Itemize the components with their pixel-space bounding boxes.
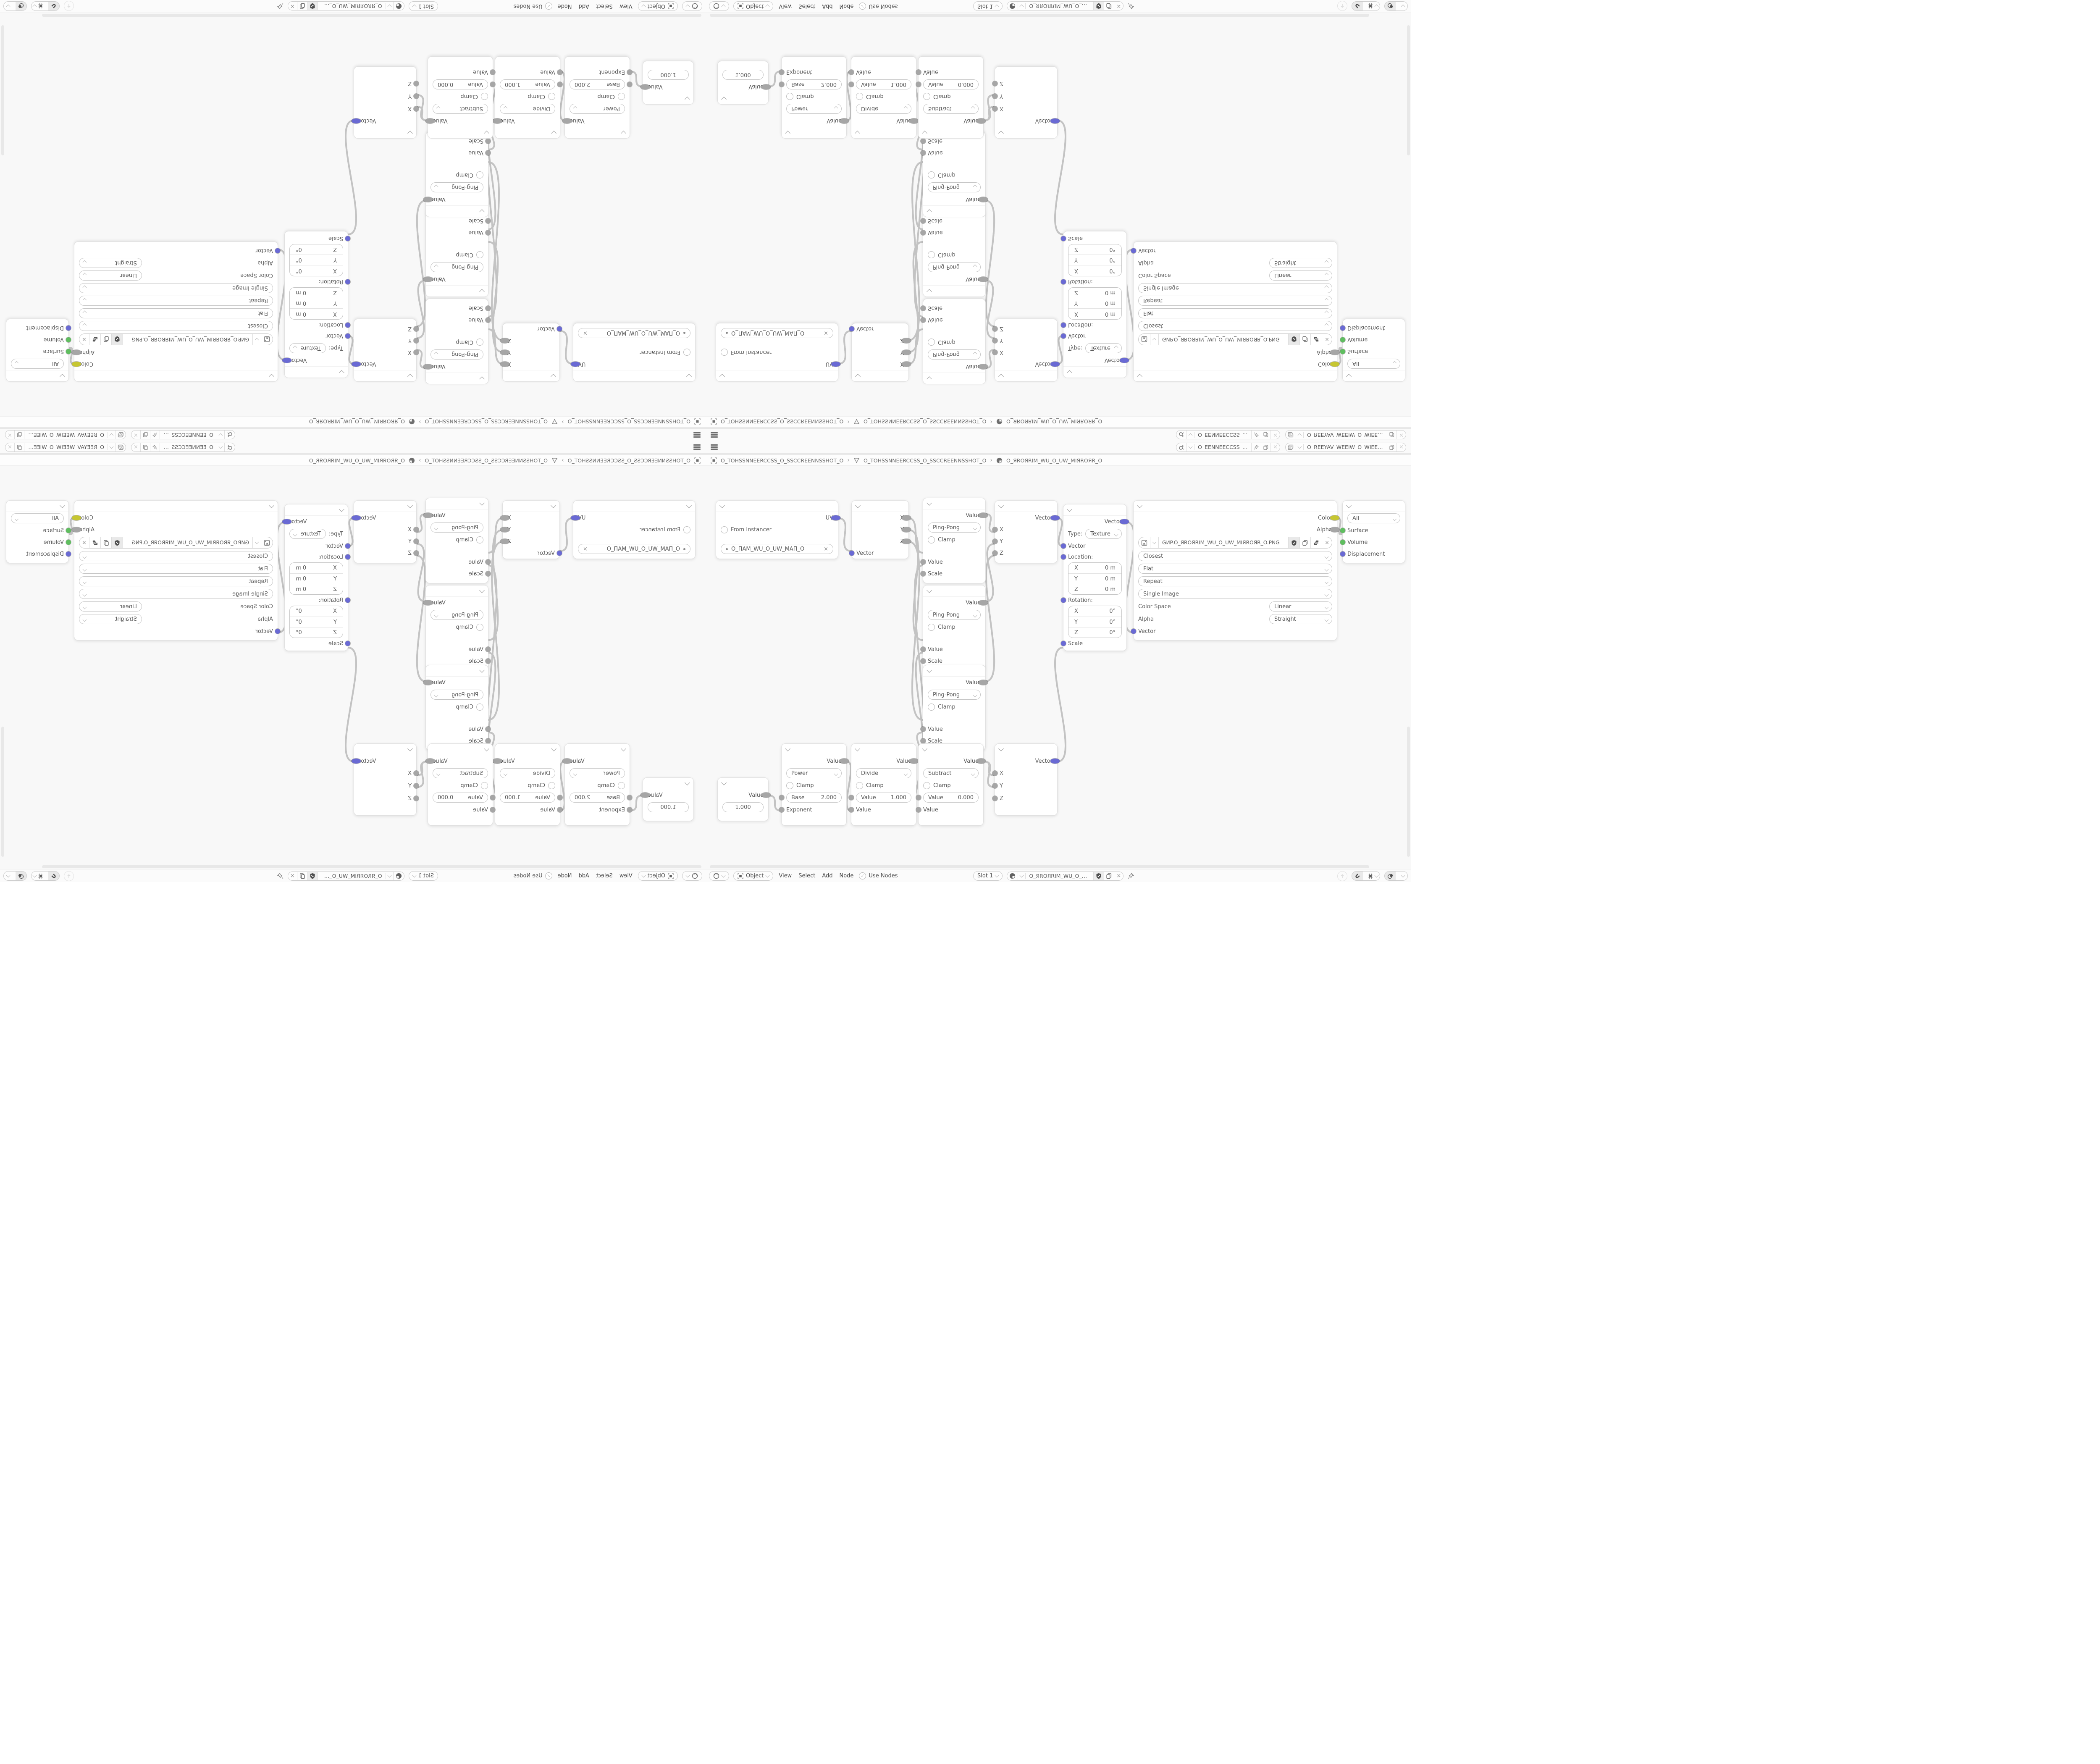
node-collapse-header[interactable] [919,744,983,755]
interpolation-select[interactable]: Closest [79,321,273,331]
node-math-ping-pong[interactable]: Value Ping-Pong Clamp Value Scale [923,665,986,751]
x-input-socket[interactable] [992,527,997,532]
editor-type-button[interactable] [709,1,729,11]
color-output-socket[interactable] [72,515,81,520]
shield-icon[interactable] [1093,2,1104,10]
operation-select[interactable]: Ping-Pong [430,690,483,700]
exponent-input-socket[interactable] [627,70,632,75]
horizontal-scrollbar[interactable] [710,14,1369,17]
operation-select[interactable]: Ping-Pong [430,262,483,272]
copy-icon[interactable] [297,872,307,880]
breadcrumb-object[interactable]: O_TOHSSNNEERCCSS_O_SSCCREENNSSHOT_O [568,457,690,464]
node-collapse-header[interactable] [995,744,1057,755]
location-input-socket[interactable] [1061,554,1066,559]
base-input-socket[interactable] [627,795,632,800]
vector-input-socket[interactable] [1061,333,1066,339]
copy-icon[interactable] [1299,334,1310,345]
value-input-socket[interactable] [916,807,921,812]
overlap-control[interactable] [1384,1,1408,11]
editor-type-button[interactable] [682,871,702,881]
value-output-socket[interactable] [979,513,988,518]
z-output-socket[interactable] [902,338,911,343]
value-input-socket[interactable] [921,559,926,564]
scale-input-socket[interactable] [486,218,491,223]
color-output-socket[interactable] [72,362,81,367]
node-collapse-header[interactable] [426,665,488,677]
value-input-socket[interactable] [921,150,926,155]
location-vector-field[interactable]: X0 m Y0 m Z0 m [289,287,343,320]
node-collapse-header[interactable] [285,504,348,516]
node-collapse-header[interactable] [503,501,559,512]
z-input-socket[interactable] [992,81,997,86]
value-output-socket[interactable] [979,364,988,369]
value-input-socket[interactable] [486,318,491,323]
value-output-socket[interactable] [423,277,433,282]
value-field[interactable]: Value0.000 [433,79,488,89]
scale-input-socket[interactable] [921,738,926,743]
z-input-socket[interactable] [414,551,419,556]
scene-selector[interactable]: O_EENNEECCSS_O_SSCCEEN… × [1176,430,1280,440]
y-input-socket[interactable] [414,94,419,99]
stack-icon[interactable] [89,334,101,345]
mapping-type-select[interactable]: Texture [289,529,326,539]
snap-target-icon[interactable] [1365,3,1380,9]
target-select[interactable]: All [1347,513,1400,523]
extension-select[interactable]: Repeat [79,296,273,306]
z-output-socket[interactable] [500,539,509,544]
menu-node[interactable]: Node [556,873,573,879]
y-output-socket[interactable] [500,527,509,532]
x-input-socket[interactable] [992,350,997,355]
node-separate-xyz[interactable]: X Y Z Vector [851,500,909,559]
overlap-circles-icon[interactable] [16,2,26,10]
menu-node[interactable]: Node [838,3,855,9]
node-math-divide[interactable]: Value Divide Clamp Value1.000 Value [495,743,560,826]
node-material-output[interactable]: All Surface Volume Displacement [1342,500,1405,563]
view-layer-selector[interactable]: O_REEYAV_WEEIW_O_WIEEW_VAYEER_O × [1285,430,1406,440]
close-icon[interactable]: × [1322,334,1332,345]
location-vector-field[interactable]: X0 m Y0 m Z0 m [289,562,343,595]
value-input-socket[interactable] [921,318,926,323]
scale-input-socket[interactable] [921,659,926,664]
clamp-checkbox[interactable] [928,172,935,179]
z-input-socket[interactable] [414,81,419,86]
vector-input-socket[interactable] [345,333,350,339]
node-collapse-header[interactable] [1134,501,1337,512]
vector-input-socket[interactable] [1131,629,1136,634]
value-input-socket[interactable] [921,230,926,235]
value-output-socket[interactable] [979,277,988,282]
operation-select[interactable]: Subtract [923,104,979,114]
node-collapse-header[interactable] [565,744,630,755]
node-combine-xyz[interactable]: Vector X Y Z [354,500,417,563]
value-output-socket[interactable] [640,793,650,798]
node-combine-xyz[interactable]: Vector X Y Z [995,500,1058,563]
interpolation-select[interactable]: Closest [1138,321,1332,331]
operation-select[interactable]: Subtract [923,768,979,778]
value-output-socket[interactable] [423,513,433,518]
value-output-socket[interactable] [425,759,435,764]
node-math-ping-pong[interactable]: Value Ping-Pong Clamp Value Scale [923,585,986,671]
shield-icon[interactable] [1093,872,1104,880]
value-field[interactable]: 1.000 [648,70,689,80]
value-input-socket[interactable] [486,230,491,235]
color-space-select[interactable]: Linear [1269,270,1332,281]
node-value[interactable]: Value 1.000 [717,777,769,821]
scale-input-socket[interactable] [345,236,350,241]
color-space-select[interactable]: Linear [1269,601,1332,612]
pin-icon[interactable] [1251,443,1261,451]
hamburger-menu-icon[interactable] [711,444,718,450]
value-field[interactable]: Value1.000 [856,793,911,803]
clamp-checkbox[interactable] [928,624,935,631]
clamp-checkbox[interactable] [476,624,483,631]
extension-select[interactable]: Repeat [79,576,273,586]
breadcrumb-object[interactable]: O_TOHSSNNEERCCSS_O_SSCCREENNSSHOT_O [568,419,690,425]
rotation-input-socket[interactable] [345,598,350,603]
value-output-socket[interactable] [761,84,771,89]
node-collapse-header[interactable] [573,501,695,512]
operation-select[interactable]: Ping-Pong [928,349,981,360]
operation-select[interactable]: Ping-Pong [430,610,483,620]
breadcrumb-mesh[interactable]: O_TOHSSNNEERCCSS_O_SSCCREENNSSHOT_O [864,457,986,464]
node-separate-xyz[interactable]: X Y Z Vector [502,323,560,382]
x-input-socket[interactable] [414,106,419,111]
x-input-socket[interactable] [414,527,419,532]
snapping-control[interactable] [1352,871,1380,881]
alpha-select[interactable]: Straight [79,258,142,268]
clamp-checkbox[interactable] [476,339,483,346]
value-output-socket[interactable] [840,118,849,123]
rotation-input-socket[interactable] [345,279,350,284]
value-output-socket[interactable] [493,759,502,764]
node-collapse-header[interactable] [426,373,488,384]
value-input-socket[interactable] [490,807,495,812]
node-mapping[interactable]: Vector Type:Texture Vector Location: X0 … [1063,504,1127,651]
node-image-texture[interactable]: Color Alpha GИP.O_ЯROЯRIM_WU_O_UW_MIЯROЯ… [74,500,278,640]
x-output-socket[interactable] [500,515,509,520]
z-input-socket[interactable] [414,326,419,331]
x-input-socket[interactable] [992,106,997,111]
image-filename[interactable]: GИP.O_ЯROЯRIM_WU_O_UW_MIЯROЯR_O.PNG [123,334,253,345]
from-instancer-checkbox[interactable] [721,349,728,356]
node-math-subtract[interactable]: Value Subtract Clamp Value0.000 Value [428,743,493,826]
value-output-socket[interactable] [423,364,433,369]
vector-output-socket[interactable] [282,358,291,363]
value-output-socket[interactable] [976,759,986,764]
shield-icon[interactable] [307,2,318,10]
image-file-field[interactable]: GИP.O_ЯROЯRIM_WU_O_UW_MIЯROЯR_O.PNG × [79,537,273,549]
node-mapping[interactable]: Vector Type:Texture Vector Location: X0 … [1063,231,1127,378]
color-space-select[interactable]: Linear [79,601,142,612]
scale-input-socket[interactable] [1061,236,1066,241]
operation-select[interactable]: Ping-Pong [928,182,981,192]
value-output-socket[interactable] [761,793,771,798]
mode-dropdown[interactable]: Object [638,1,678,11]
node-collapse-header[interactable] [852,501,908,512]
node-image-texture[interactable]: Color Alpha GИP.O_ЯROЯRIM_WU_O_UW_MIЯROЯ… [74,241,278,382]
copy-icon[interactable] [101,537,112,548]
close-icon[interactable]: × [824,546,828,552]
menu-select[interactable]: Select [797,3,816,9]
slot-dropdown[interactable]: Slot 1 [973,1,1003,11]
copy-icon[interactable] [15,431,24,439]
image-file-field[interactable]: GИP.O_ЯROЯRIM_WU_O_UW_MIЯROЯR_O.PNG × [1138,537,1332,549]
overlap-circles-icon[interactable] [1385,871,1396,880]
node-math-ping-pong[interactable]: Value Ping-Pong Clamp Value Scale [425,585,488,671]
overlap-circles-icon[interactable] [16,871,26,880]
view-layer-name[interactable]: O_REEYAV_WEEIW_O_WIEEW_VAYEER_O [24,444,108,450]
clamp-checkbox[interactable] [923,782,930,789]
extension-select[interactable]: Repeat [1138,576,1332,586]
value-input-socket[interactable] [490,82,495,87]
rotation-vector-field[interactable]: X0° Y0° Z0° [1068,244,1122,276]
vector-output-socket[interactable] [352,362,361,367]
vector-input-socket[interactable] [1061,543,1066,549]
clamp-checkbox[interactable] [476,172,483,179]
magnet-icon[interactable] [48,2,59,10]
node-math-ping-pong[interactable]: Value Ping-Pong Clamp Value Scale [923,131,986,217]
copy-icon[interactable] [141,443,150,451]
value-input-socket[interactable] [916,795,921,800]
breadcrumb-mesh[interactable]: O_TOHSSNNEERCCSS_O_SSCCREENNSSHOT_O [425,457,548,464]
scale-input-socket[interactable] [921,571,926,576]
clamp-checkbox[interactable] [548,93,555,100]
alpha-output-socket[interactable] [1330,527,1339,532]
node-collapse-header[interactable] [426,205,488,217]
scene-name[interactable]: O_EENNEECCSS_O_SSCCEEN… [160,432,217,438]
value-output-socket[interactable] [493,118,502,123]
node-math-ping-pong[interactable]: Value Ping-Pong Clamp Value Scale [425,211,488,297]
node-collapse-header[interactable] [643,778,693,789]
node-collapse-header[interactable] [1343,370,1405,381]
up-arrow-button[interactable] [1337,871,1347,881]
uv-output-socket[interactable] [831,515,840,520]
exponent-input-socket[interactable] [779,807,784,812]
value-field[interactable]: Value0.000 [923,793,979,803]
clamp-checkbox[interactable] [786,782,793,789]
vector-output-socket[interactable] [352,118,361,123]
image-file-field[interactable]: GИP.O_ЯROЯRIM_WU_O_UW_MIЯROЯR_O.PNG × [79,333,273,345]
node-separate-xyz[interactable]: X Y Z Vector [502,500,560,559]
close-icon[interactable]: × [1114,2,1123,10]
location-input-socket[interactable] [345,554,350,559]
node-collapse-header[interactable] [495,744,560,755]
node-collapse-header[interactable] [354,127,416,138]
value-field[interactable]: Value0.000 [433,793,488,803]
breadcrumb-object[interactable]: O_TOHSSNNEERCCSS_O_SSCCREENNSSHOT_O [721,457,843,464]
value-input-socket[interactable] [486,647,491,652]
image-file-field[interactable]: GИP.O_ЯROЯRIM_WU_O_UW_MIЯROЯR_O.PNG × [1138,333,1332,345]
close-icon[interactable]: × [5,443,15,451]
view-layer-selector[interactable]: O_REEYAV_WEEIW_O_WIEEW_VAYEER_O × [5,430,126,440]
vector-output-socket[interactable] [1050,118,1060,123]
y-input-socket[interactable] [414,783,419,788]
magnet-icon[interactable] [48,871,59,880]
z-output-socket[interactable] [500,338,509,343]
breadcrumb-material[interactable]: O_ЯROЯRIM_WU_O_UW_MIЯROЯR_O [1006,419,1102,425]
mode-dropdown[interactable]: Object [638,871,678,881]
pin-icon[interactable] [1128,873,1134,879]
value-input-socket[interactable] [849,70,854,75]
value-field[interactable]: 1.000 [648,802,689,812]
value-field[interactable]: Value1.000 [500,793,555,803]
shield-icon[interactable] [1288,334,1299,345]
snapping-control[interactable] [31,871,60,881]
view-layer-name[interactable]: O_REEYAV_WEEIW_O_WIEEW_VAYEER_O [1303,432,1387,438]
use-nodes-checkbox[interactable]: ✓ [859,872,866,879]
surface-input-socket[interactable] [66,349,71,354]
menu-add[interactable]: Add [577,3,591,9]
color-space-select[interactable]: Linear [79,270,142,281]
scene-selector[interactable]: O_EENNEECCSS_O_SSCCEEN… × [1176,443,1280,452]
operation-select[interactable]: Ping-Pong [928,610,981,620]
node-collapse-header[interactable] [716,501,838,512]
menu-add[interactable]: Add [821,3,834,9]
up-arrow-button[interactable] [64,871,74,881]
value-output-socket[interactable] [979,197,988,202]
node-math-power[interactable]: Value Power Clamp Base2.000 Exponent [781,56,847,139]
value-output-socket[interactable] [423,197,433,202]
operation-select[interactable]: Ping-Pong [430,349,483,360]
displacement-input-socket[interactable] [1340,325,1345,331]
clamp-checkbox[interactable] [476,703,483,711]
snap-target-icon[interactable] [31,3,46,9]
rotation-input-socket[interactable] [1061,279,1066,284]
mapping-type-select[interactable]: Texture [289,343,326,353]
vector-input-socket[interactable] [275,248,280,253]
editor-type-button[interactable] [682,1,702,11]
stack-icon[interactable] [1310,537,1322,548]
value-input-socket[interactable] [921,727,926,732]
scale-input-socket[interactable] [486,571,491,576]
node-collapse-header[interactable] [782,127,846,138]
node-material-output[interactable]: All Surface Volume Displacement [6,500,69,563]
vector-output-socket[interactable] [1050,759,1060,764]
volume-input-socket[interactable] [66,540,71,545]
copy-icon[interactable] [1261,431,1270,439]
z-input-socket[interactable] [992,796,997,801]
base-field[interactable]: Base2.000 [570,793,625,803]
clamp-checkbox[interactable] [923,93,930,100]
menu-node[interactable]: Node [838,873,855,879]
copy-icon[interactable] [1261,443,1270,451]
node-combine-xyz[interactable]: Vector X Y Z [995,743,1058,816]
vertical-scrollbar[interactable] [1,727,4,857]
vertical-scrollbar[interactable] [1,25,4,155]
vector-output-socket[interactable] [282,519,291,524]
node-uv-map[interactable]: UV From Instancer O_ПAM_WU_O_UW_MAП_O× [573,323,696,382]
close-icon[interactable]: × [5,431,15,439]
surface-input-socket[interactable] [1340,528,1345,533]
scene-selector[interactable]: O_EENNEECCSS_O_SSCCEEN… × [131,443,235,452]
magnet-icon[interactable] [1352,2,1363,10]
view-layer-selector[interactable]: O_REEYAV_WEEIW_O_WIEEW_VAYEER_O × [1285,443,1406,452]
alpha-output-socket[interactable] [1330,350,1339,355]
menu-view[interactable]: View [777,873,793,879]
z-input-socket[interactable] [992,551,997,556]
shield-icon[interactable] [307,872,318,880]
source-select[interactable]: Single Image [1138,283,1332,293]
mapping-type-select[interactable]: Texture [1085,343,1122,353]
scale-input-socket[interactable] [1061,641,1066,646]
menu-view[interactable]: View [777,3,793,9]
uv-output-socket[interactable] [571,362,580,367]
value-output-socket[interactable] [425,118,435,123]
node-combine-xyz[interactable]: Vector X Y Z [354,743,417,816]
node-collapse-header[interactable] [1063,504,1126,516]
breadcrumb-material[interactable]: O_ЯROЯRIM_WU_O_UW_MIЯROЯR_O [1006,457,1102,464]
scale-input-socket[interactable] [486,738,491,743]
node-collapse-header[interactable] [6,370,68,381]
base-input-socket[interactable] [779,795,784,800]
clamp-checkbox[interactable] [928,252,935,259]
clamp-checkbox[interactable] [928,536,935,543]
target-select[interactable]: All [1347,359,1400,369]
z-output-socket[interactable] [902,539,911,544]
node-collapse-header[interactable] [851,127,916,138]
x-output-socket[interactable] [902,515,911,520]
y-output-socket[interactable] [902,350,911,355]
close-icon[interactable]: × [79,334,89,345]
stack-icon[interactable] [1310,334,1322,345]
node-collapse-header[interactable] [718,778,768,789]
pin-icon[interactable] [277,3,283,9]
shield-icon[interactable] [112,334,123,345]
value-output-socket[interactable] [562,118,572,123]
value-input-socket[interactable] [916,70,921,75]
horizontal-scrollbar[interactable] [42,14,701,17]
node-uv-map[interactable]: UV From Instancer O_ПAM_WU_O_UW_MAП_O× [716,500,838,559]
alpha-select[interactable]: Straight [1269,258,1332,268]
node-collapse-header[interactable] [995,370,1057,381]
projection-select[interactable]: Flat [1138,308,1332,318]
node-uv-map[interactable]: UV From Instancer O_ПAM_WU_O_UW_MAП_O× [716,323,838,382]
value-input-socket[interactable] [486,727,491,732]
mode-dropdown[interactable]: Object [733,1,773,11]
location-vector-field[interactable]: X0 m Y0 m Z0 m [1068,287,1122,320]
copy-icon[interactable] [1387,443,1396,451]
value-input-socket[interactable] [916,82,921,87]
scene-name[interactable]: O_EENNEECCSS_O_SSCCEEN… [1194,432,1251,438]
value-input-socket[interactable] [486,559,491,564]
close-icon[interactable]: × [1322,537,1332,548]
slot-dropdown[interactable]: Slot 1 [973,871,1003,881]
node-collapse-header[interactable] [852,370,908,381]
value-input-socket[interactable] [557,795,562,800]
node-image-texture[interactable]: Color Alpha GИP.O_ЯROЯRIM_WU_O_UW_MIЯROЯ… [1133,500,1337,640]
node-collapse-header[interactable] [1343,501,1405,512]
vertical-scrollbar[interactable] [1407,25,1410,155]
pin-icon[interactable] [150,443,160,451]
close-icon[interactable]: × [1114,872,1123,880]
y-input-socket[interactable] [414,338,419,343]
vector-output-socket[interactable] [1050,362,1060,367]
close-icon[interactable]: × [1270,443,1280,451]
node-combine-xyz[interactable]: Vector X Y Z [995,319,1058,382]
stack-icon[interactable] [89,537,101,548]
snap-target-icon[interactable] [1365,873,1380,879]
location-input-socket[interactable] [345,323,350,328]
x-input-socket[interactable] [414,350,419,355]
vector-output-socket[interactable] [1120,358,1129,363]
close-icon[interactable]: × [131,443,141,451]
from-instancer-checkbox[interactable] [683,349,690,356]
alpha-select[interactable]: Straight [79,614,142,624]
material-selector[interactable]: O_ЯROЯRIM_WU_O_UW_MIЯROЯR_O × [1007,2,1123,11]
vector-input-socket[interactable] [557,326,562,331]
node-collapse-header[interactable] [565,127,630,138]
